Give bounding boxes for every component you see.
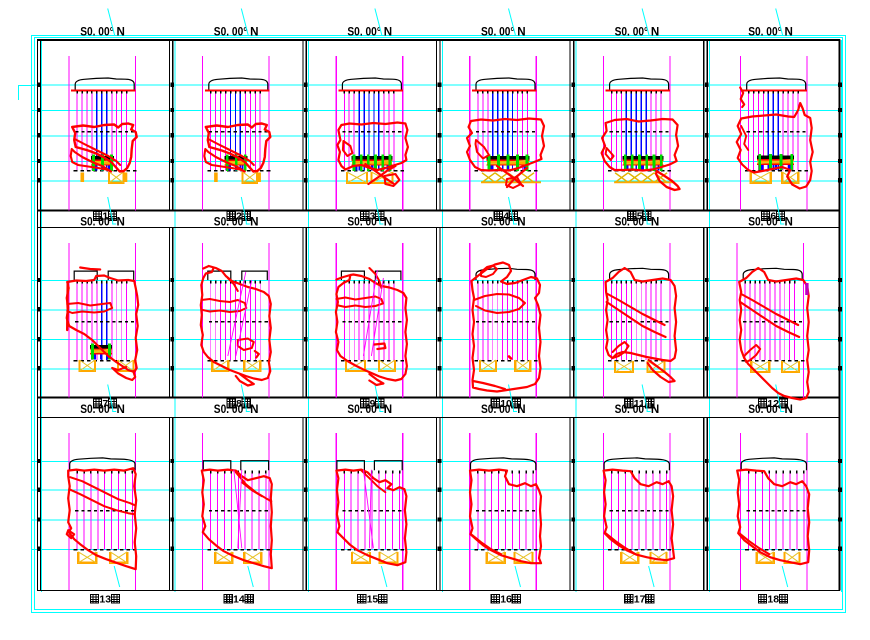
- svg-text:N: N: [785, 216, 793, 229]
- svg-text:S0. 00°: S0. 00°: [347, 403, 381, 416]
- svg-text:N: N: [250, 403, 258, 416]
- svg-text:N: N: [517, 25, 525, 38]
- svg-text:N: N: [250, 25, 258, 38]
- svg-text:S0. 00°: S0. 00°: [615, 216, 649, 229]
- svg-text:15: 15: [367, 594, 379, 606]
- svg-text:S0. 00°: S0. 00°: [748, 216, 782, 229]
- svg-text:13: 13: [99, 594, 111, 606]
- svg-text:S0. 00°: S0. 00°: [80, 216, 114, 229]
- svg-text:S0. 00°: S0. 00°: [80, 25, 114, 38]
- svg-text:N: N: [651, 403, 659, 416]
- svg-text:S0. 00°: S0. 00°: [615, 25, 649, 38]
- svg-text:16: 16: [500, 594, 512, 606]
- svg-text:N: N: [651, 25, 659, 38]
- svg-text:N: N: [785, 25, 793, 38]
- svg-text:S0. 00°: S0. 00°: [481, 216, 515, 229]
- svg-text:N: N: [117, 216, 125, 229]
- svg-text:S0. 00°: S0. 00°: [214, 25, 248, 38]
- svg-text:S0. 00°: S0. 00°: [481, 25, 515, 38]
- svg-text:N: N: [384, 403, 392, 416]
- svg-text:N: N: [384, 216, 392, 229]
- svg-text:S0. 00°: S0. 00°: [80, 403, 114, 416]
- svg-text:18: 18: [767, 594, 779, 606]
- svg-text:S0. 00°: S0. 00°: [347, 216, 381, 229]
- svg-text:S0. 00°: S0. 00°: [214, 403, 248, 416]
- svg-text:S0. 00°: S0. 00°: [347, 25, 381, 38]
- svg-text:N: N: [517, 403, 525, 416]
- svg-text:N: N: [117, 403, 125, 416]
- svg-text:S0. 00°: S0. 00°: [615, 403, 649, 416]
- svg-text:S0. 00°: S0. 00°: [748, 403, 782, 416]
- svg-text:N: N: [785, 403, 793, 416]
- svg-text:N: N: [651, 216, 659, 229]
- svg-text:14: 14: [233, 594, 245, 606]
- svg-text:S0. 00°: S0. 00°: [748, 25, 782, 38]
- svg-text:N: N: [250, 216, 258, 229]
- svg-text:S0. 00°: S0. 00°: [481, 403, 515, 416]
- svg-text:17: 17: [634, 594, 646, 606]
- svg-text:N: N: [117, 25, 125, 38]
- svg-text:N: N: [384, 25, 392, 38]
- svg-text:N: N: [517, 216, 525, 229]
- svg-text:S0. 00°: S0. 00°: [214, 216, 248, 229]
